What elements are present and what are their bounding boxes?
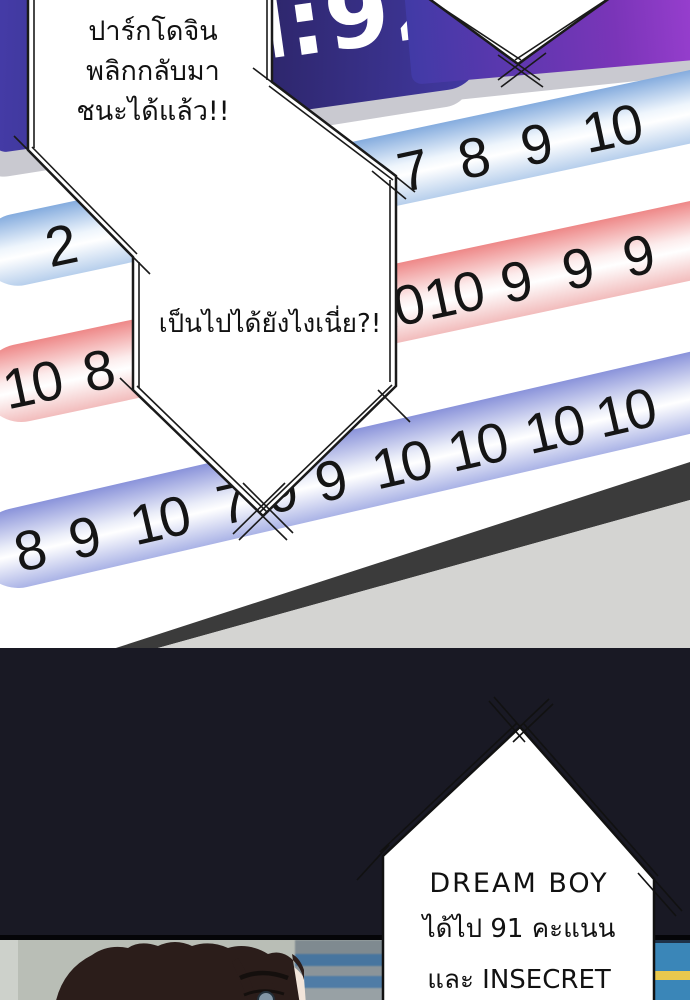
speech-bubble-bottom [0, 0, 690, 1000]
speech-line: และ INSECRET [390, 959, 648, 1000]
speech-line: ได้ไป 91 คะแนน [390, 908, 648, 949]
speech-text-bottom: DREAM BOY ได้ไป 91 คะแนน และ INSECRET ได… [390, 868, 648, 1000]
comic-page: :92 2 7 8 9 10 10 8 10 10 9 9 9 8 9 10 7… [0, 0, 690, 1000]
speech-line: DREAM BOY [390, 868, 648, 899]
